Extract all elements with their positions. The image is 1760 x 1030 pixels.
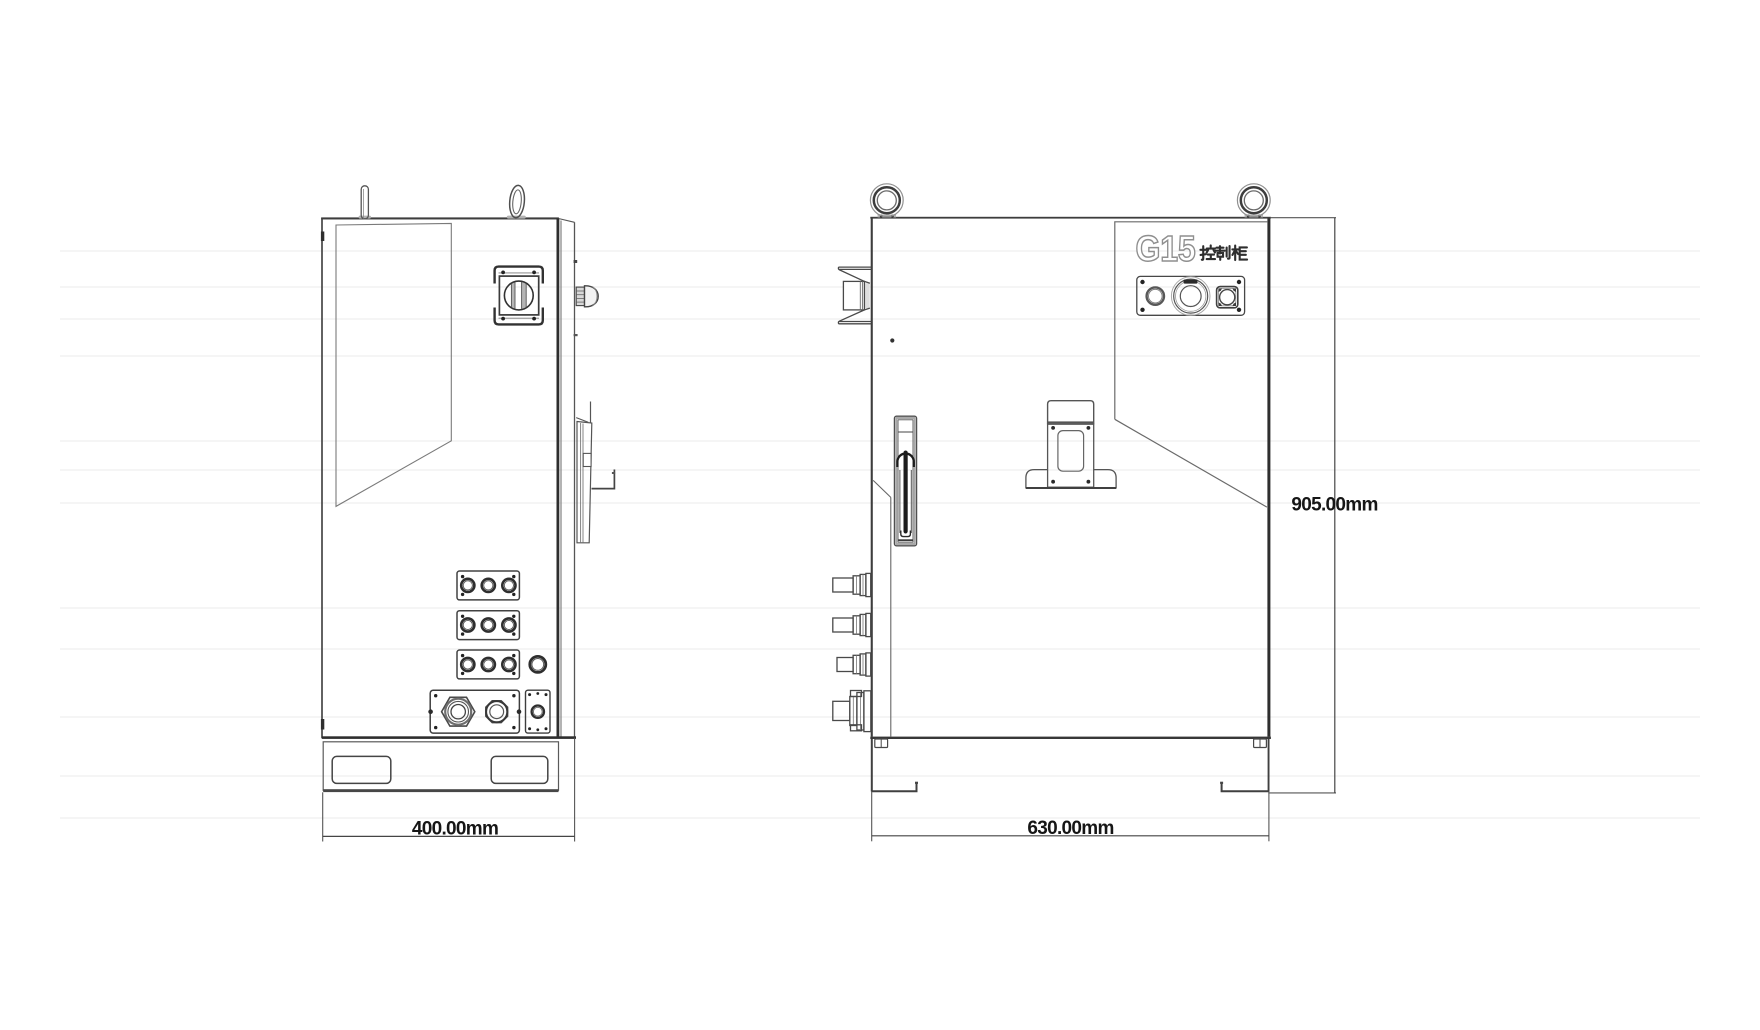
svg-text:630.00mm: 630.00mm <box>1027 818 1113 839</box>
svg-text:G15: G15 <box>1136 229 1196 269</box>
svg-text:905.00mm: 905.00mm <box>1291 495 1377 516</box>
svg-text:400.00mm: 400.00mm <box>412 819 498 840</box>
